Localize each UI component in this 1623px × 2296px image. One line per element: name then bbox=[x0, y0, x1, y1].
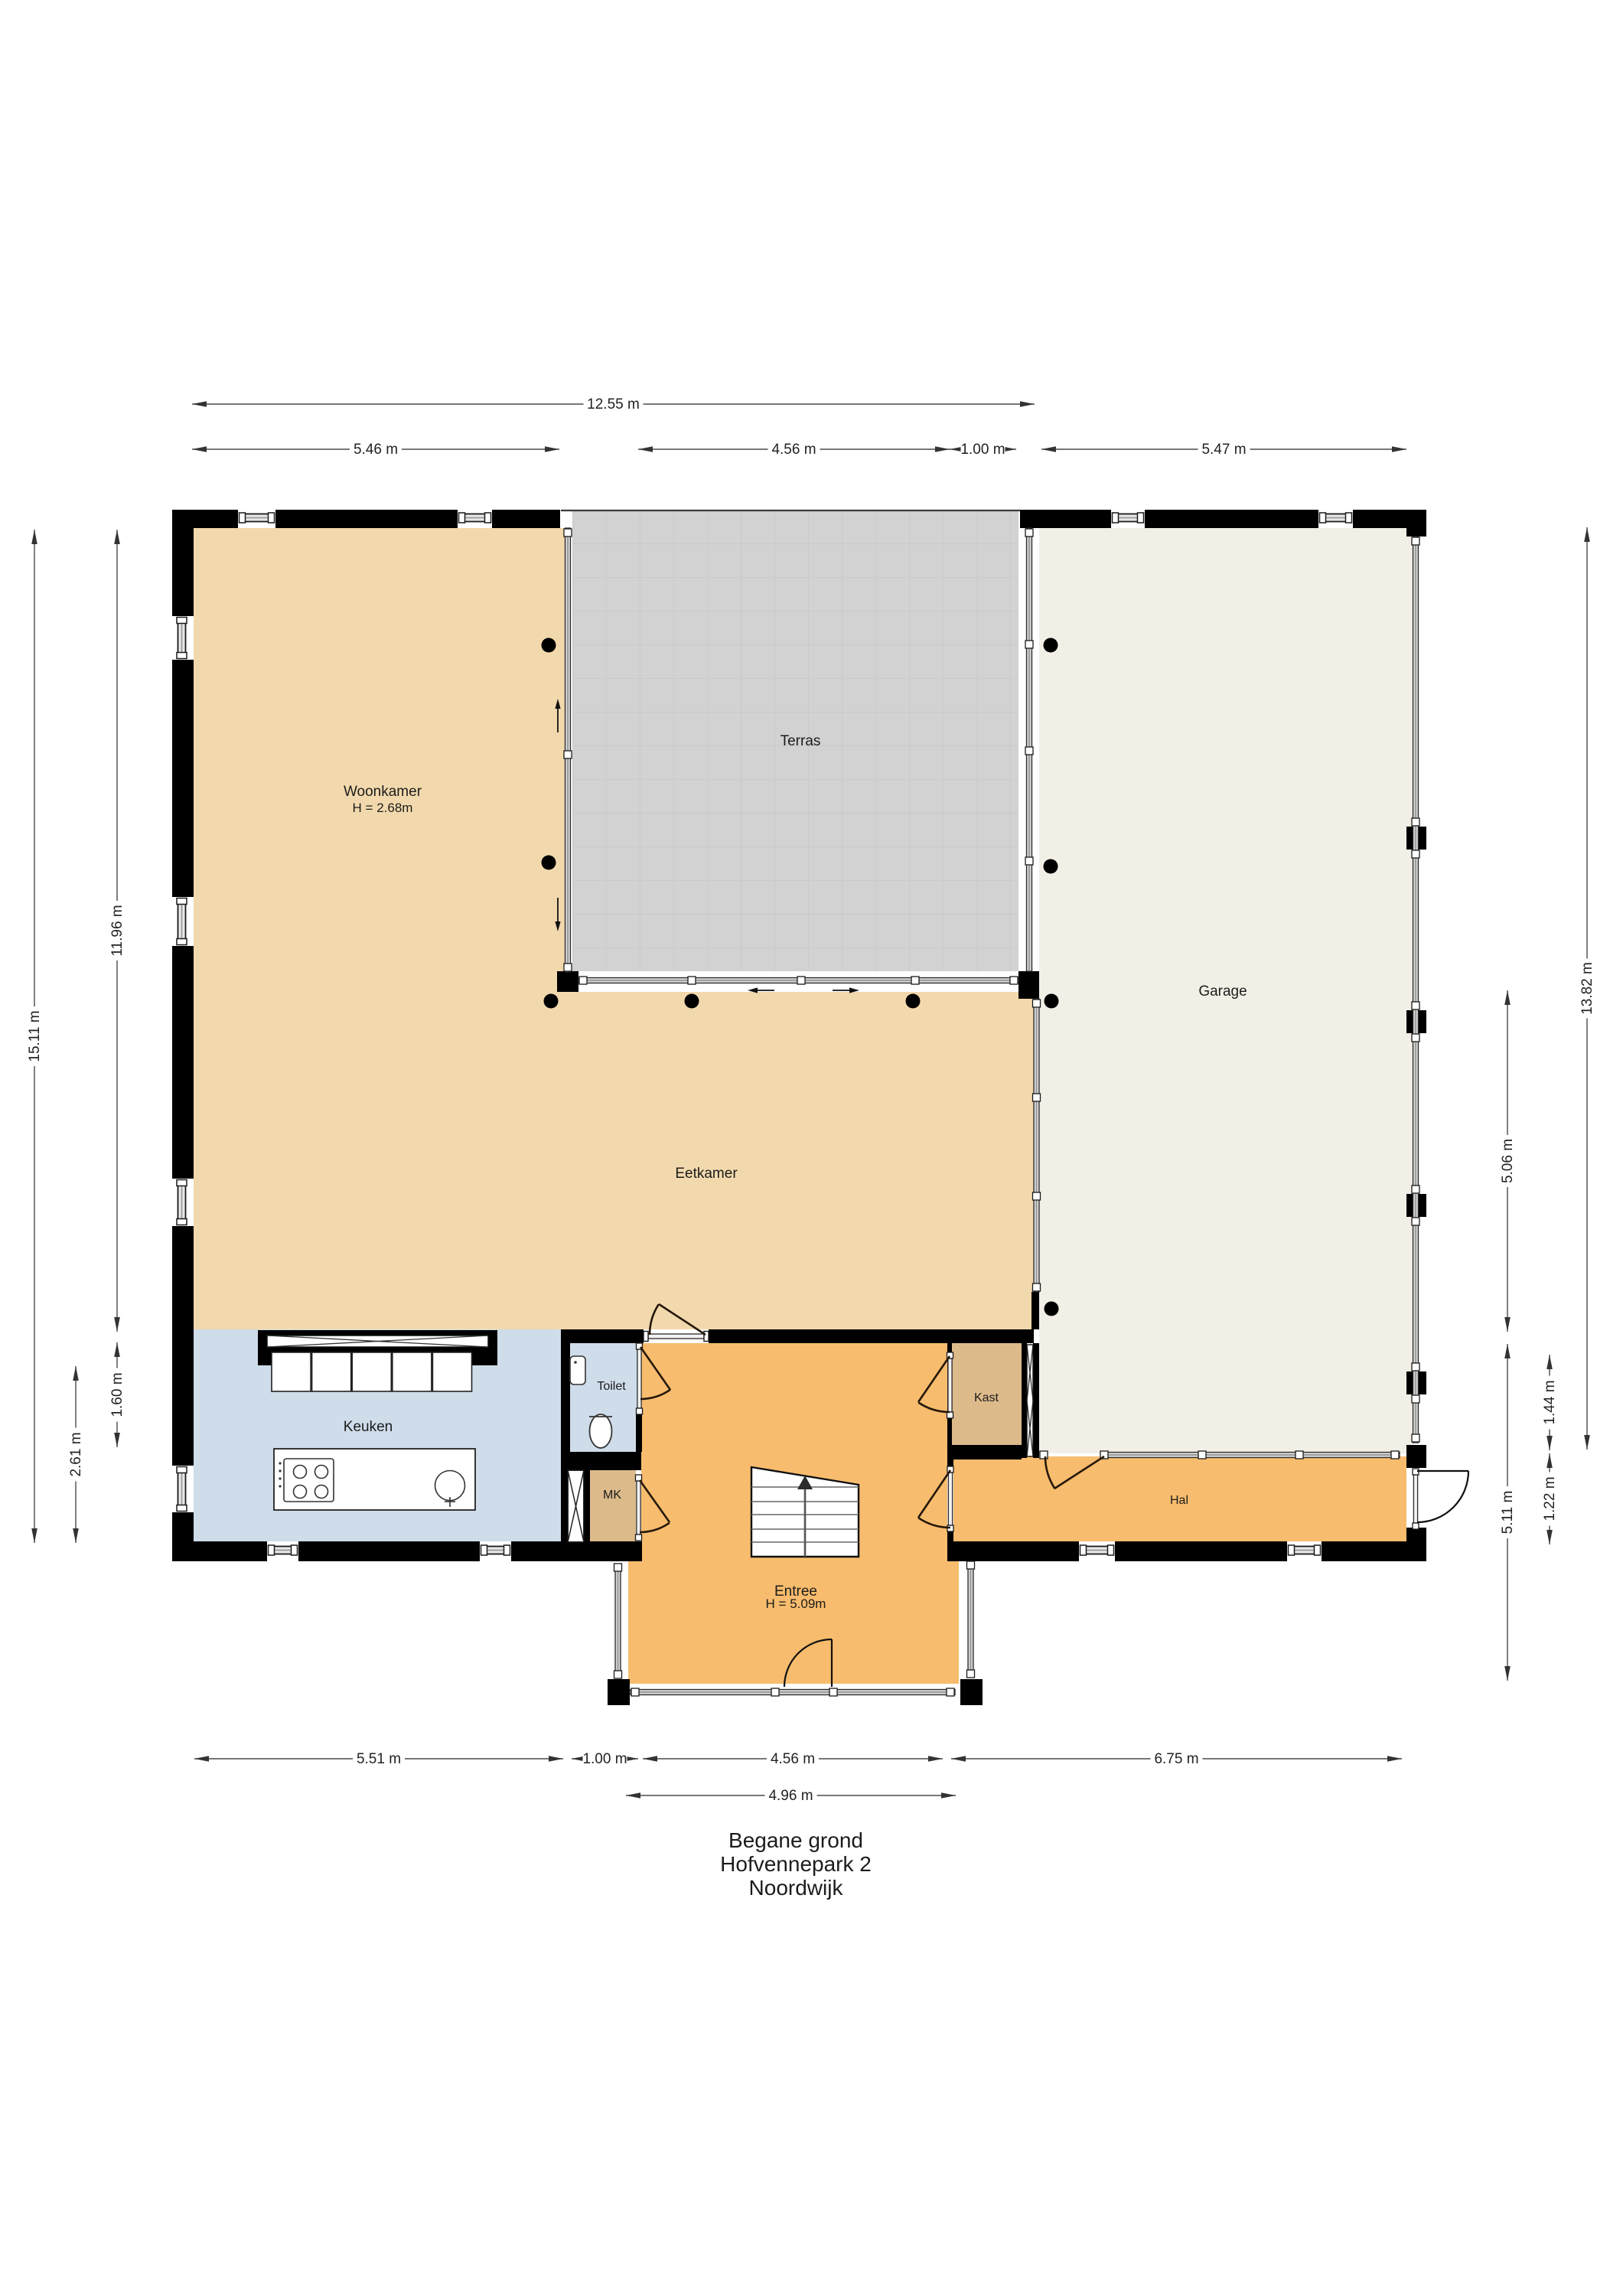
svg-text:Begane grond: Begane grond bbox=[728, 1828, 863, 1852]
svg-text:1.44 m: 1.44 m bbox=[1542, 1380, 1558, 1424]
svg-text:15.11 m: 15.11 m bbox=[27, 1010, 43, 1062]
svg-text:1.60 m: 1.60 m bbox=[109, 1372, 125, 1417]
svg-text:Kast: Kast bbox=[974, 1391, 999, 1404]
svg-text:Eetkamer: Eetkamer bbox=[675, 1166, 738, 1182]
svg-text:11.96 m: 11.96 m bbox=[109, 905, 125, 956]
svg-text:MK: MK bbox=[603, 1489, 621, 1502]
svg-text:5.46 m: 5.46 m bbox=[354, 442, 398, 458]
svg-text:5.47 m: 5.47 m bbox=[1201, 442, 1246, 458]
svg-text:Toilet: Toilet bbox=[597, 1380, 626, 1393]
svg-text:4.56 m: 4.56 m bbox=[771, 442, 816, 458]
svg-text:Hal: Hal bbox=[1170, 1494, 1188, 1507]
svg-text:Woonkamer: Woonkamer bbox=[344, 784, 422, 800]
svg-text:4.96 m: 4.96 m bbox=[768, 1788, 813, 1804]
svg-text:1.00 m: 1.00 m bbox=[582, 1751, 627, 1767]
svg-text:Garage: Garage bbox=[1198, 983, 1247, 1000]
svg-text:Terras: Terras bbox=[781, 733, 821, 749]
svg-text:Keuken: Keuken bbox=[344, 1419, 393, 1435]
svg-text:12.55 m: 12.55 m bbox=[587, 396, 640, 413]
svg-text:5.11 m: 5.11 m bbox=[1500, 1491, 1516, 1534]
svg-text:2.61 m: 2.61 m bbox=[68, 1432, 84, 1476]
svg-text:4.56 m: 4.56 m bbox=[771, 1751, 815, 1767]
svg-text:H = 5.09m: H = 5.09m bbox=[766, 1596, 826, 1611]
svg-text:Noordwijk: Noordwijk bbox=[749, 1876, 844, 1900]
svg-text:1.22 m: 1.22 m bbox=[1542, 1476, 1558, 1521]
svg-text:Hofvennepark 2: Hofvennepark 2 bbox=[720, 1852, 872, 1876]
svg-text:5.06 m: 5.06 m bbox=[1500, 1139, 1516, 1183]
svg-text:5.51 m: 5.51 m bbox=[357, 1751, 401, 1767]
svg-text:13.82 m: 13.82 m bbox=[1579, 962, 1595, 1015]
svg-text:6.75 m: 6.75 m bbox=[1154, 1751, 1198, 1767]
svg-text:1.00 m: 1.00 m bbox=[960, 442, 1005, 458]
svg-text:H = 2.68m: H = 2.68m bbox=[353, 801, 413, 815]
